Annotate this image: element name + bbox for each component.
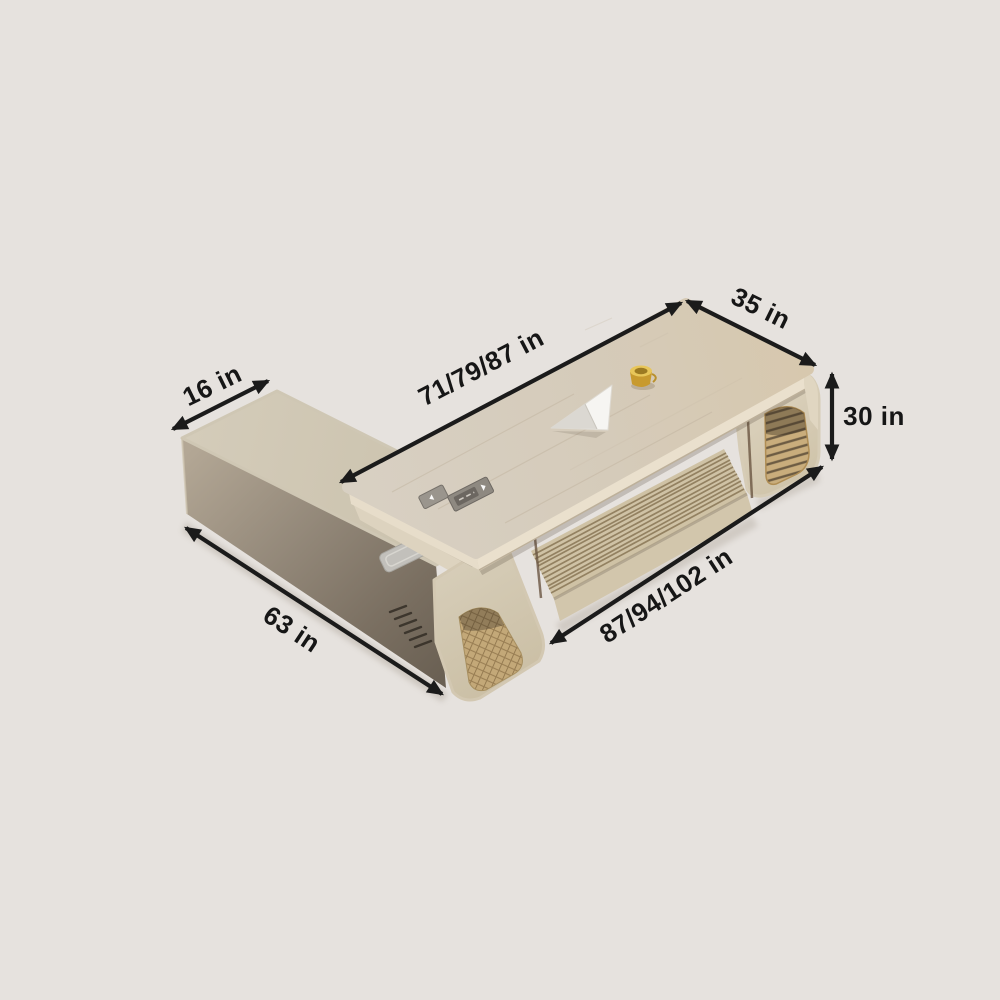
desk-illustration xyxy=(0,0,1000,1000)
dimension-label-desk-height: 30 in xyxy=(843,403,905,429)
product-dimension-diagram: 16 in 71/79/87 in 35 in 30 in 87/94/102 … xyxy=(0,0,1000,1000)
